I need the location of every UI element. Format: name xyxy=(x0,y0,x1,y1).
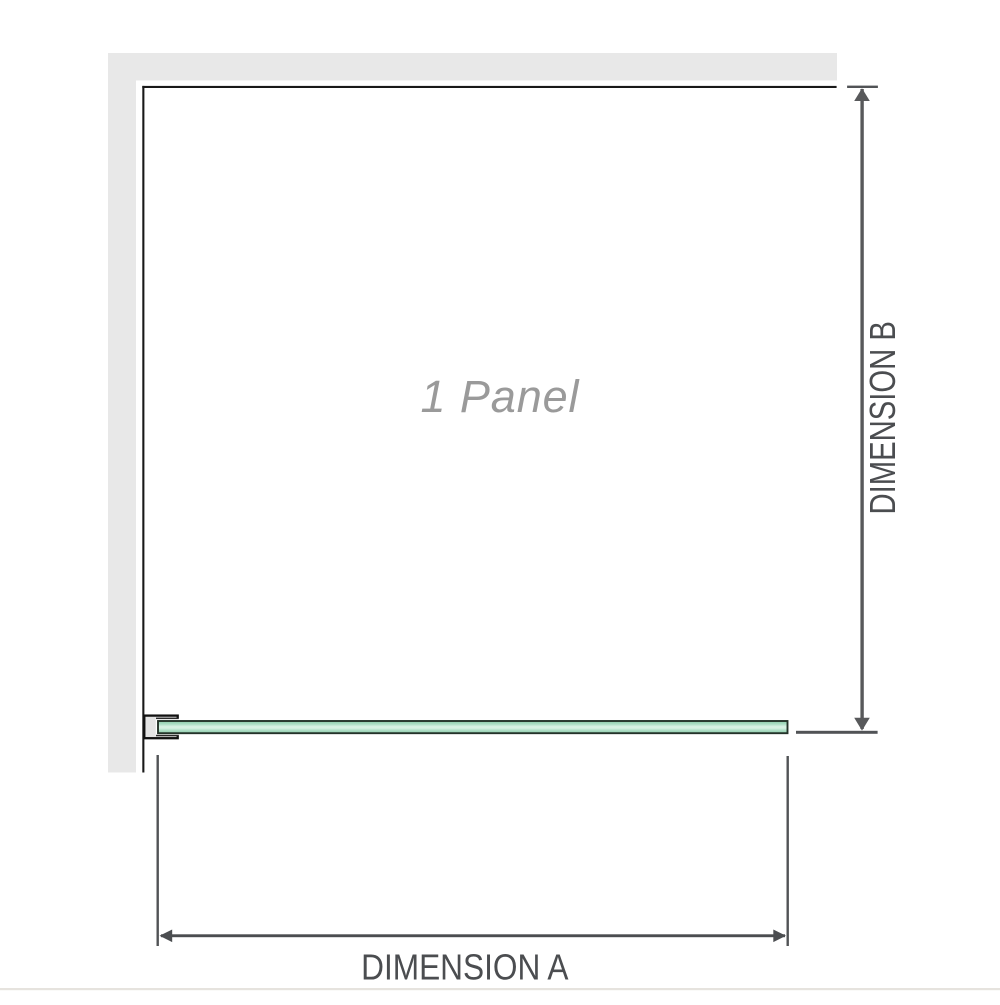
svg-text:DIMENSION A: DIMENSION A xyxy=(361,947,569,988)
svg-text:DIMENSION B: DIMENSION B xyxy=(863,321,904,515)
svg-text:1 Panel: 1 Panel xyxy=(421,371,581,422)
